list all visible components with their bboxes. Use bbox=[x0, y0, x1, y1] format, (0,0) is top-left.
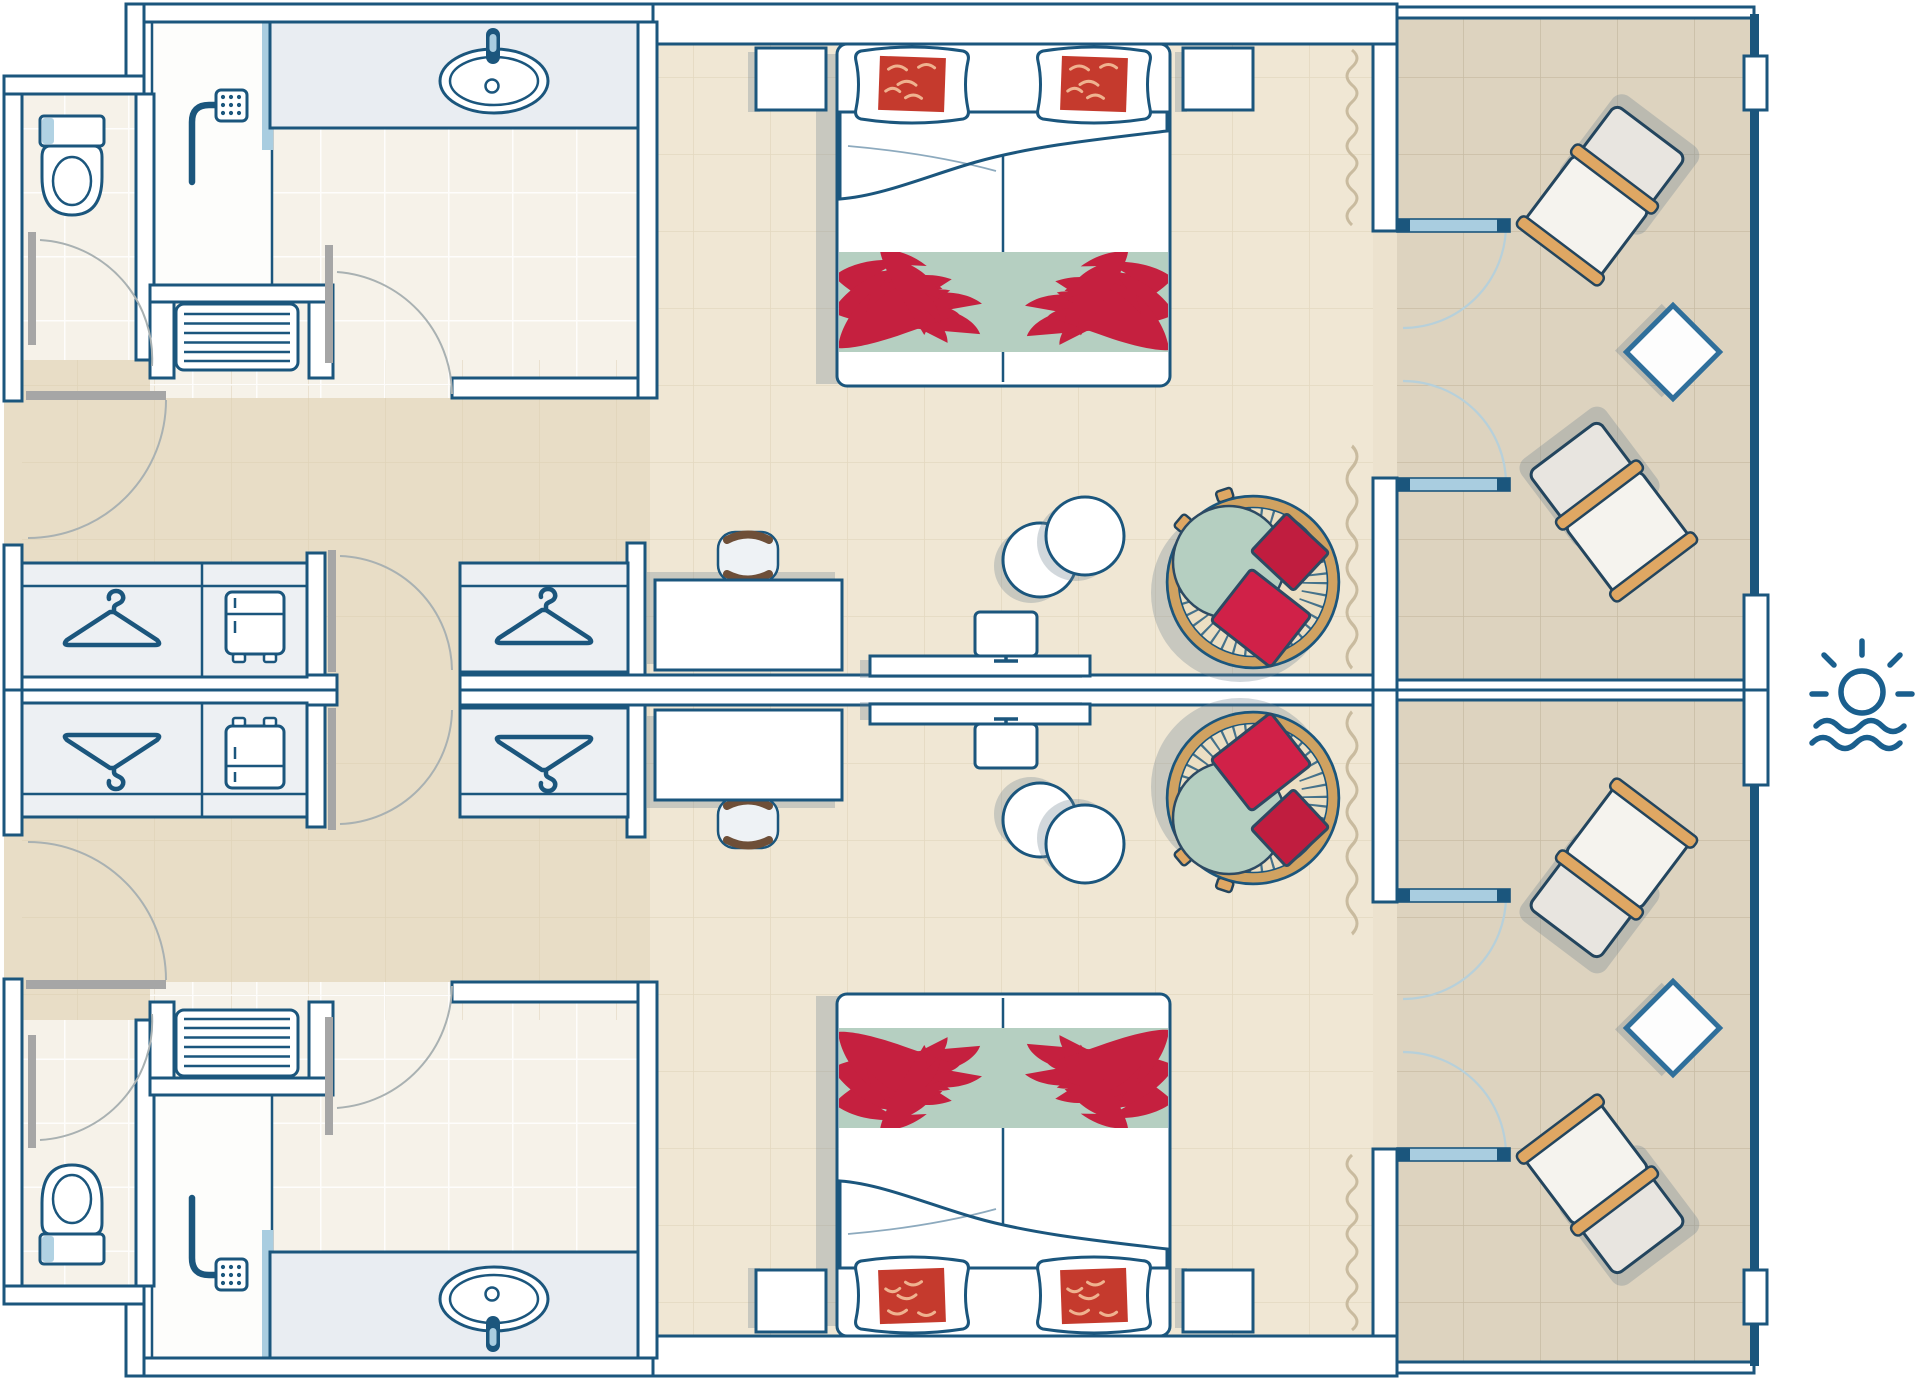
room-unit-bottom bbox=[4, 690, 1768, 1376]
room-unit-top bbox=[4, 4, 1768, 690]
floor-plan-canvas bbox=[0, 0, 1920, 1379]
sun-over-sea-icon bbox=[1812, 641, 1912, 749]
floor-plan-page bbox=[0, 0, 1920, 1379]
